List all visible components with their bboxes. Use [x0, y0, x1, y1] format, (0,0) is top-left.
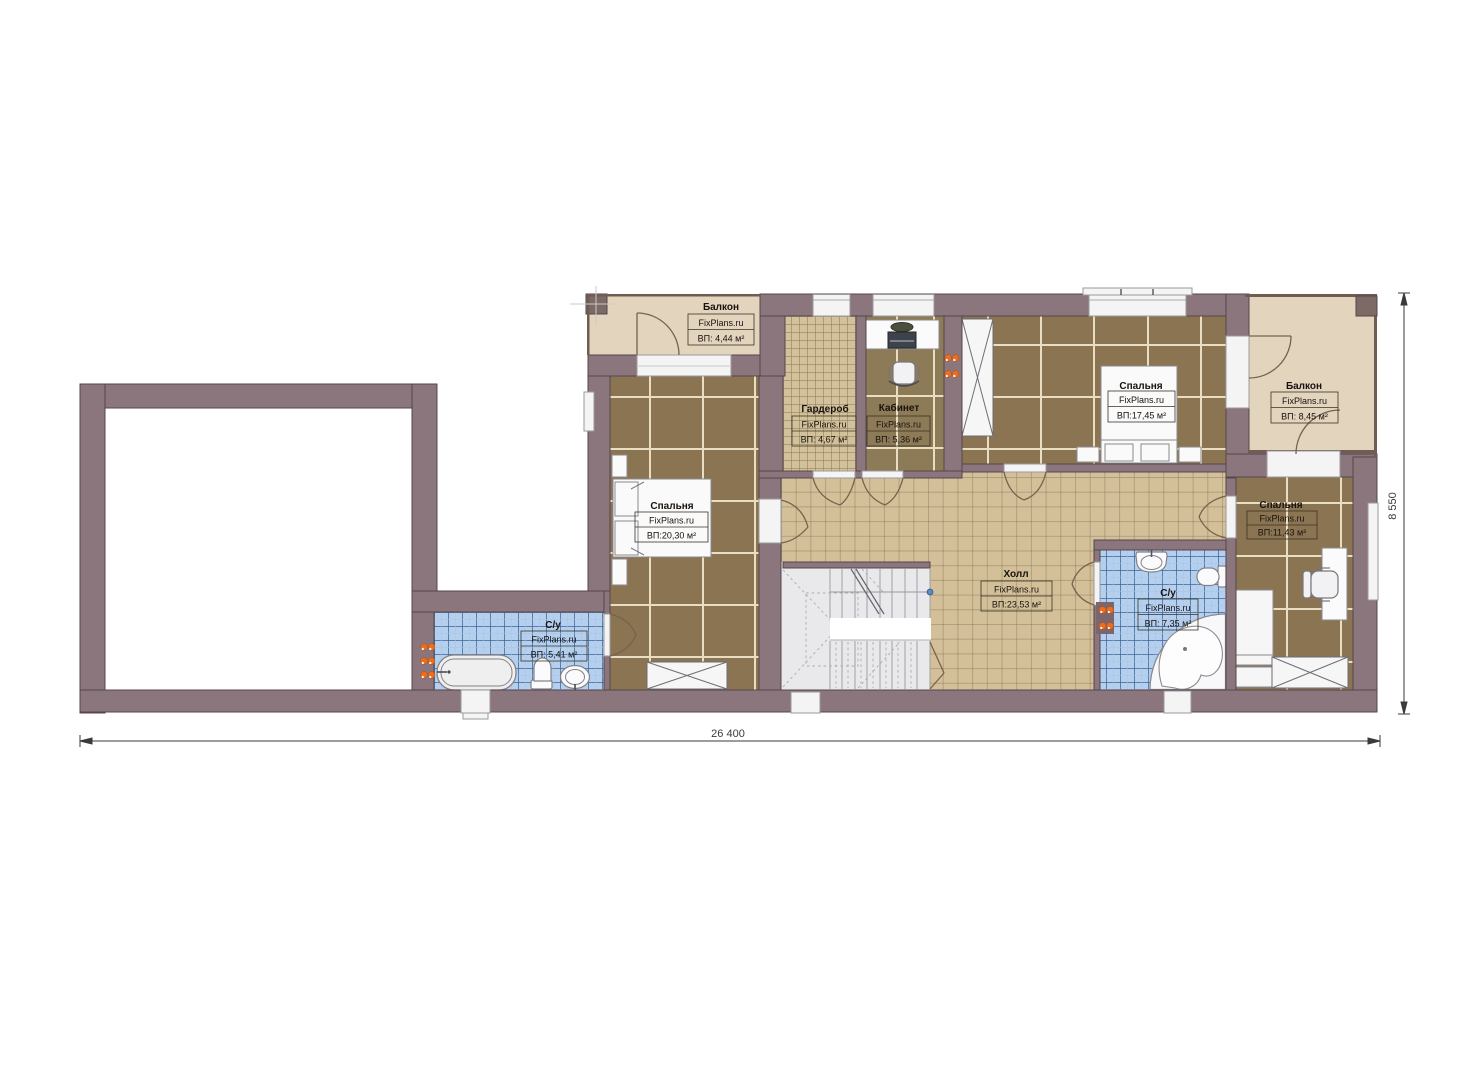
svg-text:ВП: 5,41 м²: ВП: 5,41 м² — [531, 650, 578, 660]
svg-text:FixPlans.ru: FixPlans.ru — [801, 420, 846, 430]
svg-text:8 550: 8 550 — [1387, 492, 1399, 520]
svg-text:Кабинет: Кабинет — [879, 402, 920, 414]
svg-text:Балкон: Балкон — [703, 302, 739, 313]
svg-text:FixPlans.ru: FixPlans.ru — [1119, 395, 1164, 405]
svg-text:Спальня: Спальня — [1119, 381, 1162, 392]
svg-text:FixPlans.ru: FixPlans.ru — [1282, 396, 1327, 406]
svg-text:ВП:17,45 м²: ВП:17,45 м² — [1117, 411, 1166, 421]
svg-text:Гардероб: Гардероб — [801, 403, 848, 415]
svg-text:Спальня: Спальня — [1259, 500, 1302, 511]
svg-text:26 400: 26 400 — [711, 728, 745, 740]
svg-text:ВП:20,30 м²: ВП:20,30 м² — [647, 531, 696, 541]
svg-text:Балкон: Балкон — [1286, 381, 1322, 392]
svg-text:ВП: 5,36 м²: ВП: 5,36 м² — [875, 435, 922, 445]
svg-text:FixPlans.ru: FixPlans.ru — [531, 635, 576, 645]
svg-text:ВП: 4,44 м²: ВП: 4,44 м² — [698, 334, 745, 344]
svg-text:Спальня: Спальня — [650, 501, 693, 512]
svg-text:ВП: 8,45 м²: ВП: 8,45 м² — [1281, 412, 1328, 422]
svg-text:Холл: Холл — [1003, 569, 1028, 580]
svg-text:FixPlans.ru: FixPlans.ru — [649, 516, 694, 526]
svg-text:FixPlans.ru: FixPlans.ru — [1145, 603, 1190, 613]
svg-text:ВП: 4,67 м²: ВП: 4,67 м² — [801, 435, 848, 445]
svg-text:FixPlans.ru: FixPlans.ru — [698, 318, 743, 328]
svg-text:С/у: С/у — [1160, 588, 1176, 599]
svg-text:С/у: С/у — [545, 620, 561, 631]
svg-text:FixPlans.ru: FixPlans.ru — [876, 420, 921, 430]
svg-text:ВП: 7,35 м²: ВП: 7,35 м² — [1145, 619, 1192, 629]
svg-text:FixPlans.ru: FixPlans.ru — [994, 585, 1039, 595]
svg-text:ВП:11,43 м²: ВП:11,43 м² — [1258, 528, 1307, 538]
svg-text:ВП:23,53 м²: ВП:23,53 м² — [992, 600, 1041, 610]
svg-text:FixPlans.ru: FixPlans.ru — [1259, 514, 1304, 524]
